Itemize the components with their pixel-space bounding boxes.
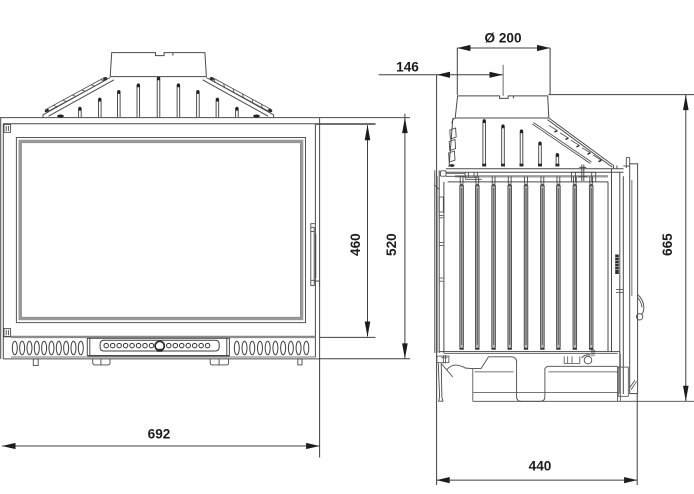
svg-text:692: 692 — [148, 427, 171, 442]
svg-text:440: 440 — [529, 459, 552, 474]
svg-text:460: 460 — [348, 233, 363, 256]
svg-text:665: 665 — [660, 233, 675, 256]
svg-text:146: 146 — [396, 60, 419, 75]
svg-text:520: 520 — [384, 233, 399, 256]
svg-text:Ø 200: Ø 200 — [484, 31, 521, 46]
